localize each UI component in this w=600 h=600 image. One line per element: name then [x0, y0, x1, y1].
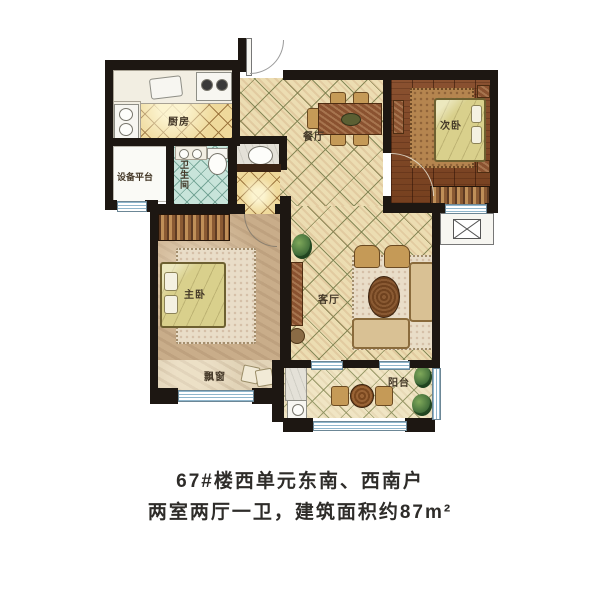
- wall: [383, 196, 391, 213]
- wall: [490, 70, 498, 213]
- balcony-window: [313, 421, 407, 431]
- wall: [405, 418, 435, 432]
- sofa: [352, 318, 410, 349]
- wall: [283, 360, 311, 368]
- tv-cabinet: [291, 262, 303, 326]
- nightstand: [477, 85, 490, 98]
- wall: [432, 203, 440, 368]
- living-label: 客厅: [318, 291, 340, 306]
- equipment-platform-label: 设备平台: [117, 170, 153, 183]
- burner-icon: [216, 79, 228, 91]
- bay-window-label: 飘窗: [204, 368, 226, 383]
- washer-drum-icon: [292, 404, 304, 416]
- washing-machine: [287, 400, 307, 419]
- balcony-side-rail: [432, 368, 441, 420]
- stove: [196, 72, 232, 101]
- wall: [166, 146, 174, 204]
- pillow: [164, 272, 178, 291]
- armchair: [354, 245, 380, 268]
- wall: [105, 200, 117, 210]
- wall: [408, 360, 440, 368]
- window: [445, 204, 487, 214]
- wall: [383, 70, 391, 153]
- dresser: [393, 100, 404, 134]
- pillow: [471, 126, 482, 144]
- wall: [150, 388, 178, 404]
- wall: [283, 418, 313, 432]
- second-bedroom-label: 次卧: [440, 117, 462, 132]
- balcony-chair: [331, 386, 349, 406]
- caption-line-2: 两室两厅一卫，建筑面积约87m²: [0, 497, 600, 524]
- window: [311, 361, 343, 370]
- ac-crossbox-icon: [453, 219, 481, 239]
- wall: [341, 360, 379, 368]
- caption-line-1: 67#楼西单元东南、西南户: [0, 466, 600, 493]
- armchair: [384, 245, 410, 268]
- kitchen-sink: [114, 104, 139, 140]
- wall: [280, 196, 291, 368]
- bathroom-label: 卫生间: [178, 160, 191, 190]
- balcony-table: [350, 384, 374, 408]
- pillow: [471, 105, 482, 123]
- bathroom-counter: [175, 146, 207, 160]
- sink-basin-icon: [119, 108, 133, 121]
- ac-platform: [440, 213, 494, 245]
- balcony-chair: [375, 386, 393, 406]
- wall: [150, 204, 158, 404]
- window: [379, 361, 410, 370]
- basin-icon: [179, 149, 189, 159]
- wall: [232, 70, 240, 145]
- kitchen-label: 厨房: [168, 113, 190, 128]
- toilet-bowl-icon: [208, 153, 227, 175]
- wall: [105, 60, 240, 70]
- wall: [105, 138, 240, 146]
- sink-basin-icon: [119, 123, 133, 136]
- burner-icon: [201, 79, 213, 91]
- window: [117, 201, 147, 212]
- plant: [414, 366, 432, 388]
- vanity-basin-icon: [248, 146, 273, 165]
- wall: [272, 360, 284, 422]
- wall: [105, 60, 113, 208]
- master-bedroom-label: 主卧: [184, 286, 206, 301]
- table-centerpiece: [341, 113, 361, 126]
- side-pouf: [289, 328, 305, 344]
- floorplan-image: 厨房 设备平台 卫生间 餐厅 次卧 主卧: [0, 0, 600, 600]
- balcony-shelf: [285, 367, 307, 401]
- dining-label: 餐厅: [303, 128, 325, 143]
- wall-entry-jamb: [238, 38, 246, 72]
- vanity-front: [237, 164, 281, 172]
- balcony-label: 阳台: [388, 374, 410, 389]
- cutting-board: [149, 75, 183, 100]
- entry-door-arc: [250, 40, 284, 74]
- wall: [228, 138, 237, 214]
- coffee-table: [368, 276, 400, 318]
- bay-window-glass: [178, 390, 254, 402]
- pillow: [164, 295, 178, 314]
- master-wardrobe: [158, 214, 230, 241]
- basin-icon: [192, 149, 202, 159]
- dining-table: [318, 103, 382, 135]
- plant: [412, 394, 432, 416]
- plant: [292, 234, 312, 259]
